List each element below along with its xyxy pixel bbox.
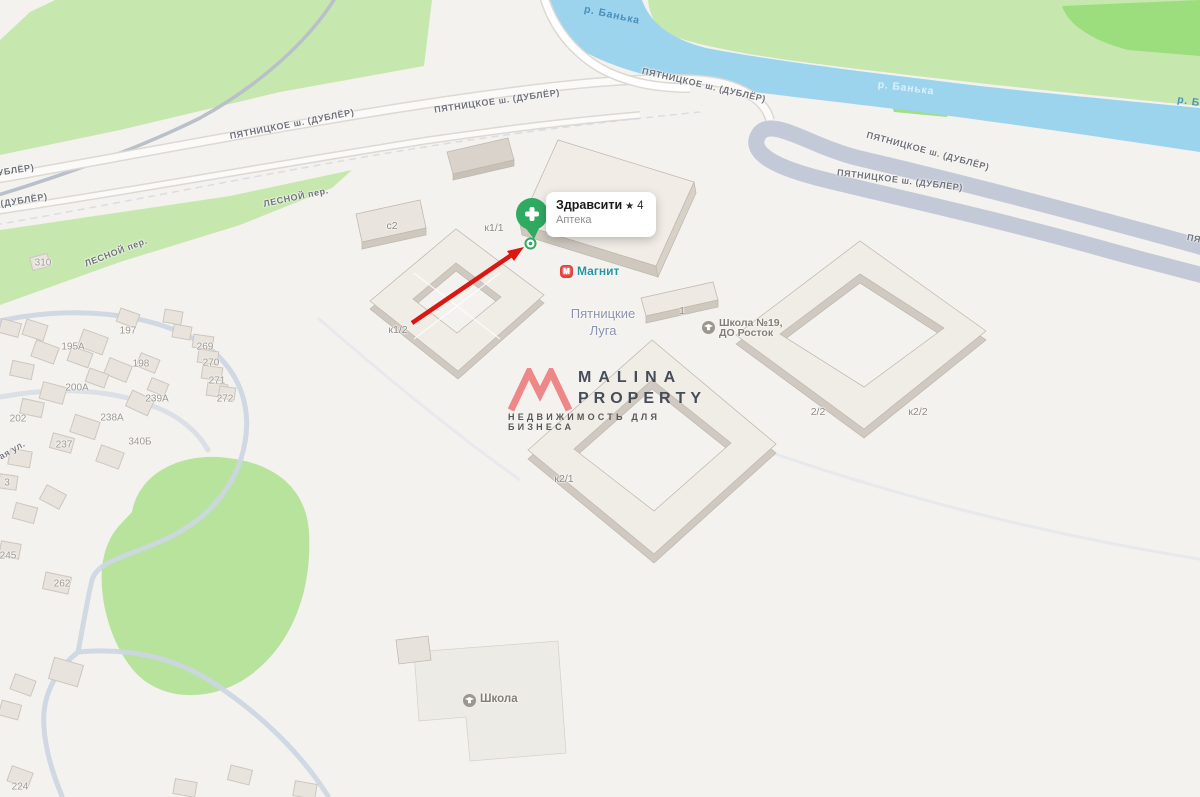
magnit-label: Магнит	[577, 264, 619, 278]
house	[0, 700, 22, 720]
house	[147, 378, 169, 397]
district-line1: Пятницкие	[571, 305, 635, 322]
house	[49, 433, 74, 453]
watermark-logo: MALINA PROPERTY НЕДВИЖИМОСТЬ ДЛЯ БИЗНЕСА	[505, 366, 715, 424]
house	[0, 474, 18, 490]
house	[22, 319, 48, 341]
school19-label: Школа №19, ДО Росток	[719, 318, 783, 338]
house	[12, 502, 37, 523]
school-icon	[702, 321, 715, 334]
poi-school19[interactable]: Школа №19, ДО Росток	[702, 318, 783, 338]
house	[173, 779, 197, 797]
house	[96, 445, 124, 469]
map-canvas[interactable]: ПЯТНИЦКОЕ ш. (ДУБЛЁР)ПЯТНИЦКОЕ ш. (ДУБЛЁ…	[0, 0, 1200, 797]
house	[163, 309, 183, 325]
house	[136, 353, 160, 373]
watermark-brand-line1: MALINA	[578, 369, 682, 387]
house	[43, 572, 72, 594]
school19-line2: ДО Росток	[719, 327, 773, 339]
pharmacy-card[interactable]: Здравсити ★ 4 Аптека	[546, 192, 656, 237]
house	[126, 390, 155, 416]
district-label: Пятницкие Луга	[571, 305, 635, 339]
house	[39, 382, 67, 405]
house	[10, 674, 36, 697]
house	[0, 319, 21, 338]
house	[201, 365, 223, 381]
poi-magnit[interactable]: М Магнит	[560, 264, 619, 278]
house	[197, 349, 219, 365]
house	[7, 766, 33, 789]
house	[293, 781, 317, 797]
house	[104, 358, 133, 383]
house	[20, 398, 45, 417]
pharmacy-title-row: Здравсити ★ 4	[556, 198, 646, 212]
house	[0, 541, 21, 559]
pharmacy-rating: 4	[637, 200, 643, 212]
house	[31, 340, 59, 364]
house	[116, 308, 140, 328]
house	[172, 324, 192, 340]
malina-logo-icon	[507, 368, 573, 412]
house	[40, 485, 67, 509]
house	[10, 360, 35, 379]
watermark-tagline: НЕДВИЖИМОСТЬ ДЛЯ БИЗНЕСА	[508, 412, 715, 432]
magnit-store-icon: М	[560, 265, 573, 278]
district-line2: Луга	[571, 322, 635, 339]
house	[70, 414, 100, 439]
pharmacy-title: Здравсити	[556, 198, 622, 212]
house	[8, 448, 32, 468]
house	[218, 386, 236, 400]
watermark-brand-line2: PROPERTY	[578, 390, 706, 408]
rating-star-icon: ★	[625, 201, 634, 212]
house	[228, 765, 253, 785]
courtyard-paths	[414, 273, 500, 339]
buildings	[356, 138, 986, 761]
pharmacy-category: Аптека	[556, 214, 646, 226]
school-icon	[463, 694, 476, 707]
poi-school[interactable]: Школа	[463, 691, 518, 707]
school-label: Школа	[480, 693, 518, 705]
house	[192, 334, 214, 350]
